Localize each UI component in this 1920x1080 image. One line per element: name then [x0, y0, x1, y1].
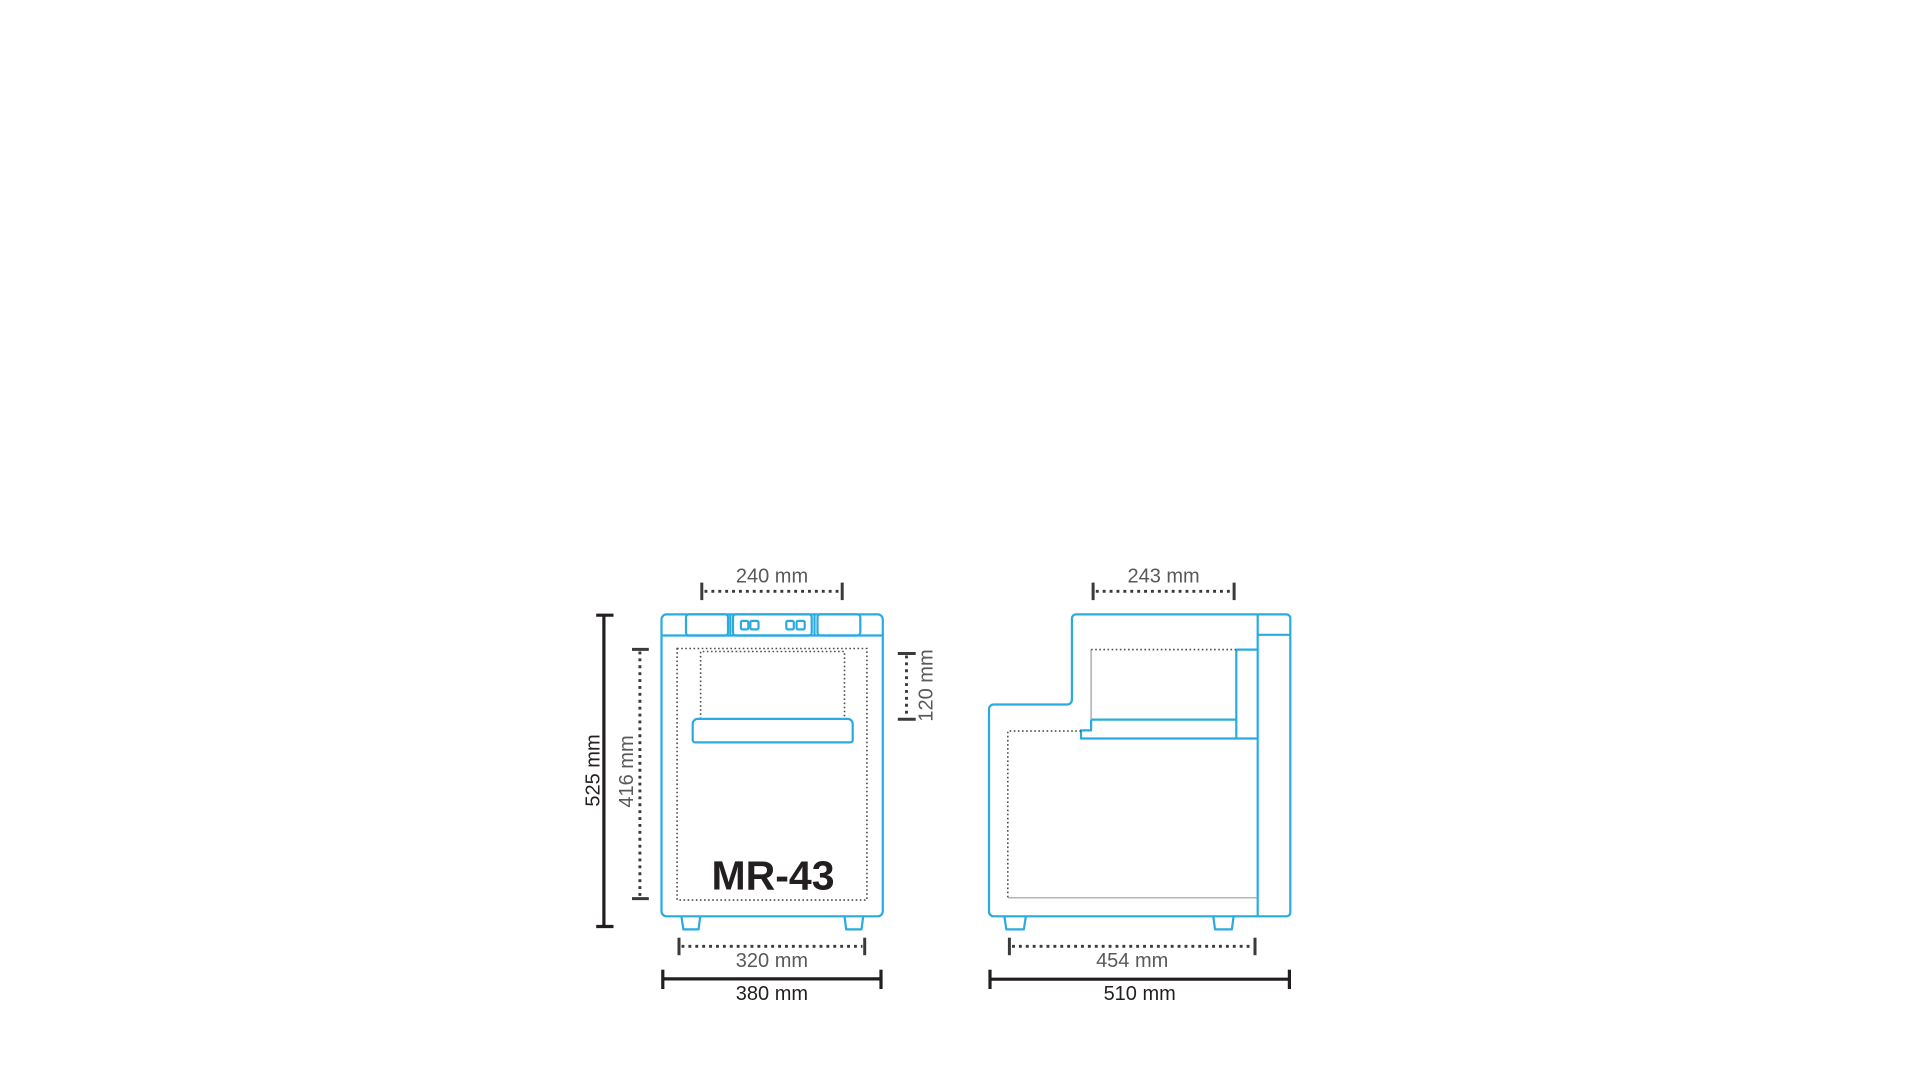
svg-text:120 mm: 120 mm [916, 649, 938, 721]
svg-text:MR-43: MR-43 [711, 853, 834, 899]
svg-text:454 mm: 454 mm [1096, 950, 1168, 972]
svg-text:240 mm: 240 mm [736, 566, 808, 588]
svg-text:525 mm: 525 mm [583, 734, 605, 806]
svg-text:243 mm: 243 mm [1127, 566, 1199, 588]
svg-text:320 mm: 320 mm [736, 950, 808, 972]
svg-text:510 mm: 510 mm [1104, 983, 1176, 1005]
svg-text:380 mm: 380 mm [736, 983, 808, 1005]
svg-text:416 mm: 416 mm [616, 735, 638, 807]
